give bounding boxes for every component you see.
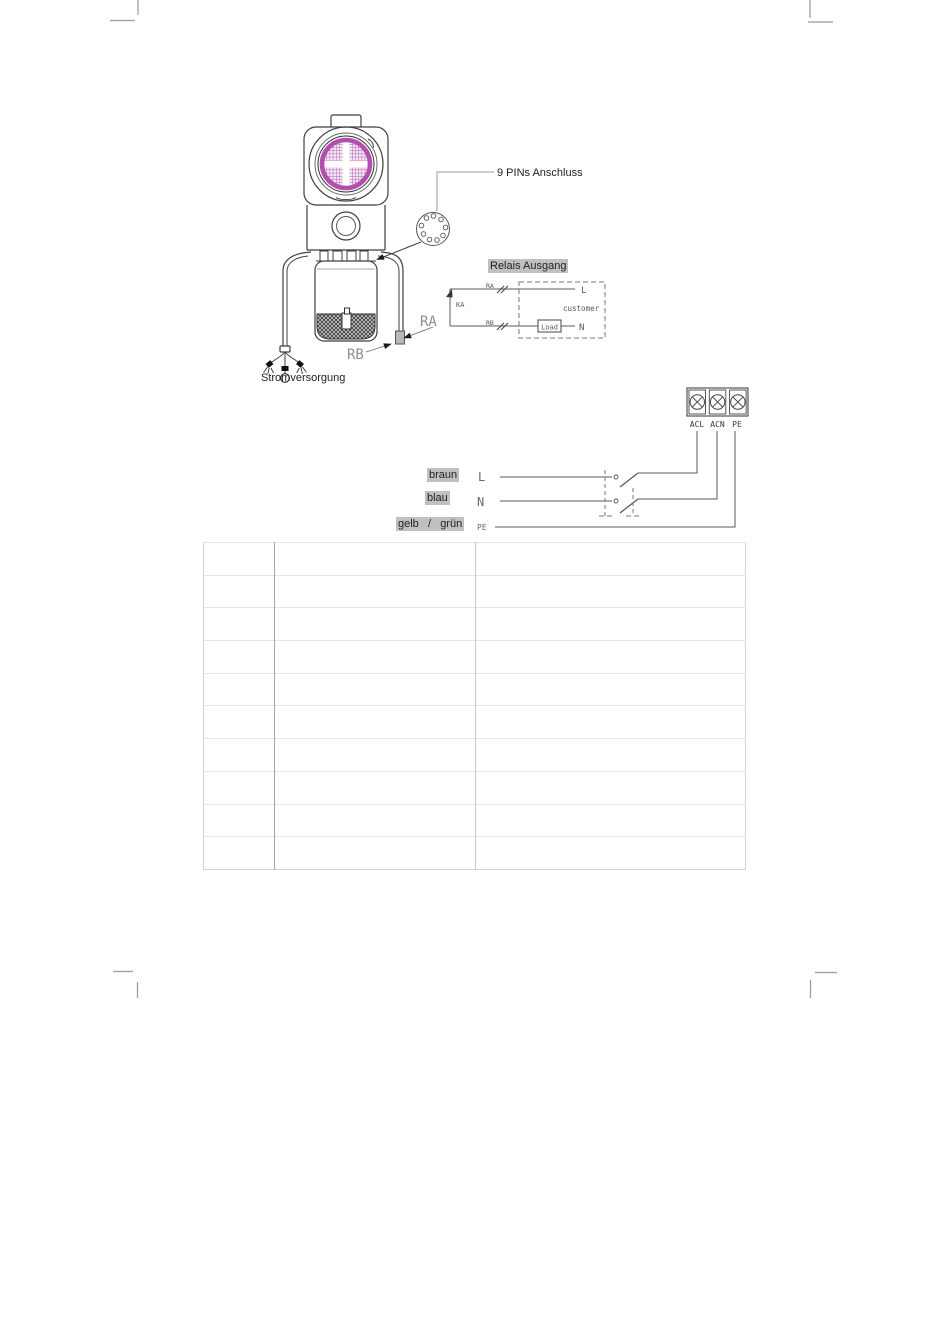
table-cell bbox=[275, 543, 476, 576]
relay-cable bbox=[378, 252, 405, 344]
table-cell bbox=[476, 673, 746, 706]
spec-table-body bbox=[204, 543, 746, 870]
table-cell bbox=[204, 739, 275, 772]
table-row bbox=[204, 771, 746, 804]
mains-wiring: L N PE bbox=[477, 431, 735, 532]
relay-wire-a-label: RA bbox=[486, 282, 494, 290]
table-cell bbox=[275, 706, 476, 739]
table-cell bbox=[204, 804, 275, 837]
table-row bbox=[204, 837, 746, 870]
relay-customer-label: customer bbox=[563, 304, 600, 313]
mains-line-label: L bbox=[478, 470, 485, 484]
table-cell bbox=[204, 608, 275, 641]
table-cell bbox=[204, 837, 275, 870]
table-cell bbox=[476, 608, 746, 641]
table-cell bbox=[476, 575, 746, 608]
device-rb-label: RB bbox=[347, 347, 364, 363]
terminal-label-pe: PE bbox=[732, 420, 742, 429]
device-drawing bbox=[264, 115, 434, 382]
terminal-label-acl: ACL bbox=[690, 420, 705, 429]
table-row bbox=[204, 543, 746, 576]
table-cell bbox=[275, 739, 476, 772]
ka-contact-arrow bbox=[446, 289, 453, 298]
mains-pe-label: PE bbox=[477, 523, 487, 532]
table-row bbox=[204, 804, 746, 837]
table-cell bbox=[476, 543, 746, 576]
table-cell bbox=[476, 706, 746, 739]
relay-cable-marker bbox=[396, 331, 405, 344]
table-cell bbox=[476, 837, 746, 870]
relay-circuit: RA RB KA L N customer Load bbox=[446, 282, 605, 338]
table-row bbox=[204, 575, 746, 608]
device-ra-label: RA bbox=[420, 314, 437, 330]
page: RA RB KA L N customer Load ACL ACN bbox=[0, 0, 950, 1343]
table-cell bbox=[204, 641, 275, 674]
table-cell bbox=[204, 543, 275, 576]
table-cell bbox=[476, 641, 746, 674]
device-mid-body bbox=[307, 205, 385, 250]
terminal-label-acn: ACN bbox=[710, 420, 725, 429]
table-cell bbox=[476, 804, 746, 837]
table-row bbox=[204, 739, 746, 772]
table-row bbox=[204, 641, 746, 674]
table-cell bbox=[275, 608, 476, 641]
table-cell bbox=[204, 673, 275, 706]
relay-line-label: L bbox=[581, 286, 586, 296]
connector-device-arrow bbox=[377, 242, 421, 260]
table-row bbox=[204, 608, 746, 641]
table-row bbox=[204, 673, 746, 706]
power-cable bbox=[264, 252, 312, 382]
table-cell bbox=[204, 706, 275, 739]
wire-color-yellow-green: gelb / grün bbox=[396, 517, 464, 531]
device-terminal-strip bbox=[316, 251, 376, 261]
table-cell bbox=[275, 641, 476, 674]
table-cell bbox=[275, 804, 476, 837]
power-supply-label: Stromversorgung bbox=[261, 371, 345, 385]
spec-table bbox=[203, 542, 746, 870]
wire-color-blue: blau bbox=[425, 491, 450, 505]
wire-color-brown: braun bbox=[427, 468, 459, 482]
terminal-block: ACL ACN PE bbox=[687, 388, 748, 429]
device-top-tab bbox=[331, 115, 361, 128]
rb-leader bbox=[366, 344, 391, 352]
relay-output-title: Relais Ausgang bbox=[488, 259, 568, 273]
table-cell bbox=[275, 837, 476, 870]
table-cell bbox=[275, 575, 476, 608]
table-cell bbox=[204, 771, 275, 804]
table-row bbox=[204, 706, 746, 739]
nine-pin-connector bbox=[377, 172, 494, 260]
mains-neutral-label: N bbox=[477, 495, 484, 509]
table-cell bbox=[275, 771, 476, 804]
relay-load-label: Load bbox=[541, 324, 558, 332]
nine-pins-callout: 9 PINs Anschluss bbox=[497, 166, 583, 180]
relay-neutral-label: N bbox=[579, 323, 584, 333]
terminal-screws bbox=[690, 395, 745, 409]
relay-contact-label: KA bbox=[456, 301, 465, 309]
relay-wire-b-label: RB bbox=[486, 319, 494, 327]
table-cell bbox=[476, 771, 746, 804]
table-cell bbox=[204, 575, 275, 608]
table-cell bbox=[476, 739, 746, 772]
table-cell bbox=[275, 673, 476, 706]
